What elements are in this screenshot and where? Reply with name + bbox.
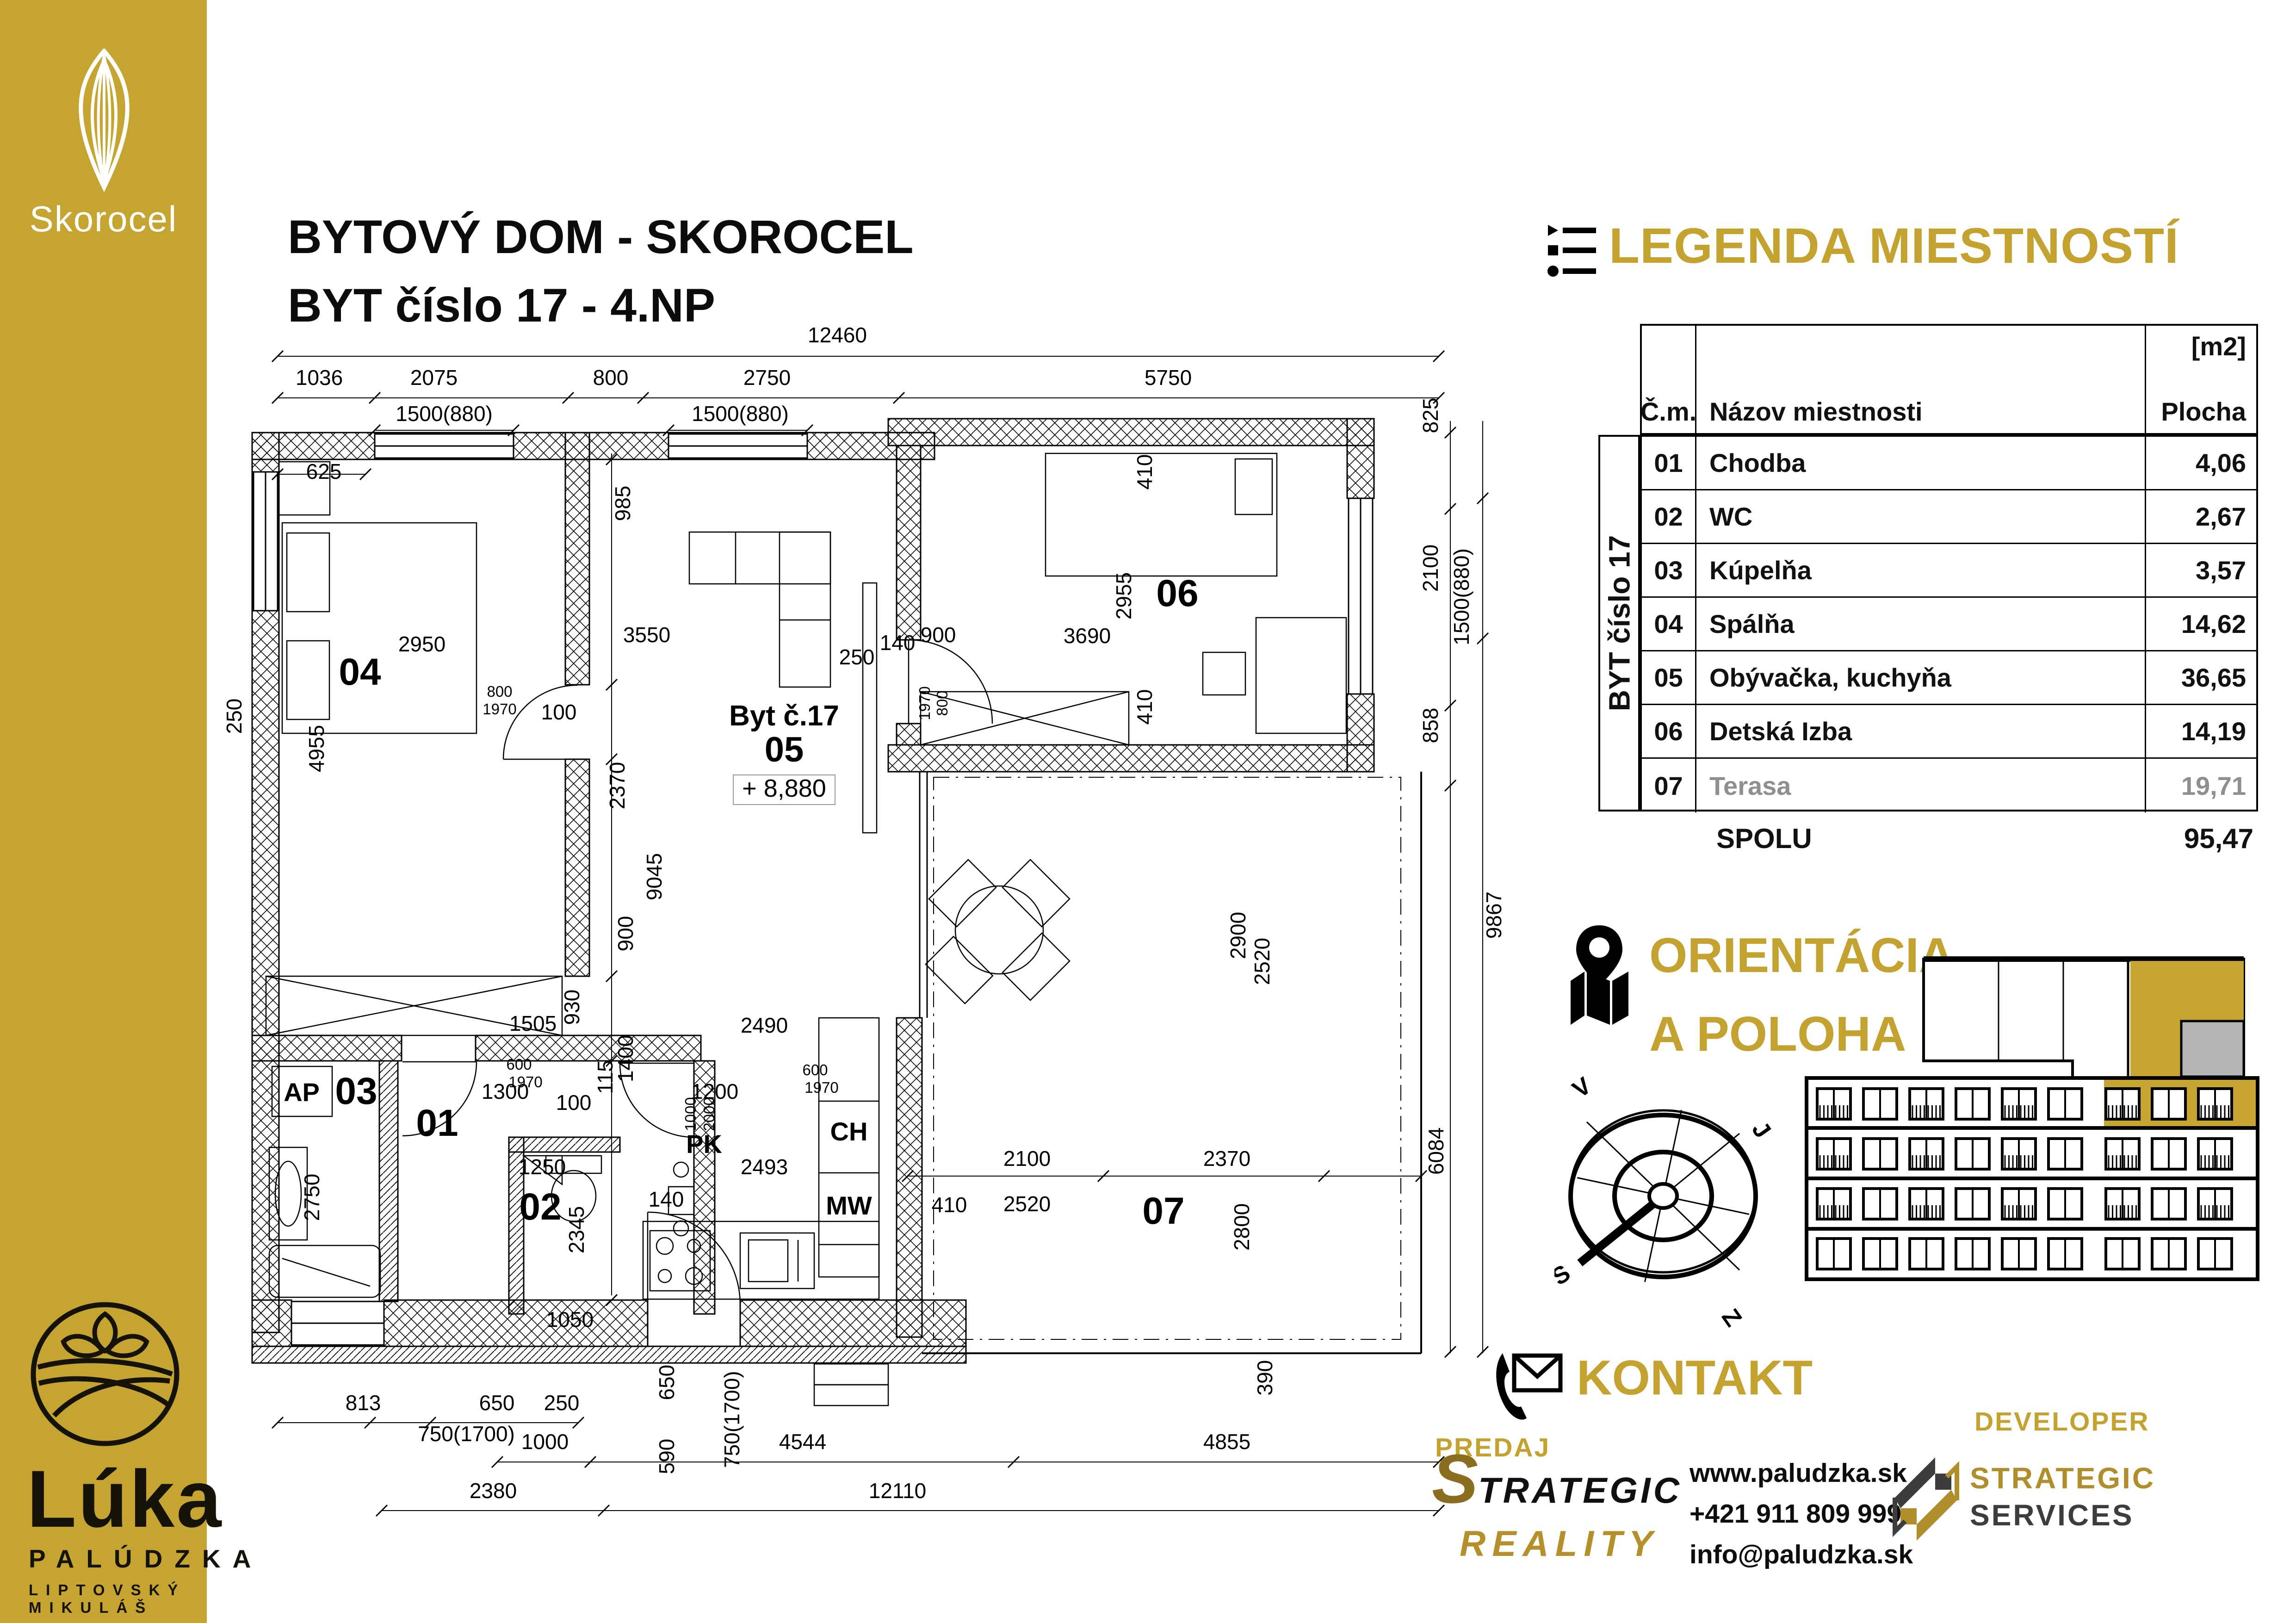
svg-text:1036: 1036 [296, 365, 343, 390]
legend-row: 02WC2,67 [1642, 490, 2256, 544]
svg-text:140: 140 [880, 631, 916, 655]
sr-line2-initial: R [1460, 1523, 1492, 1564]
svg-text:4955: 4955 [304, 725, 328, 772]
svg-text:390: 390 [1253, 1360, 1277, 1396]
svg-text:600: 600 [802, 1061, 828, 1078]
svg-text:4544: 4544 [779, 1430, 826, 1454]
svg-text:1500(880): 1500(880) [1449, 548, 1473, 645]
svg-text:2520: 2520 [1003, 1192, 1051, 1216]
legend-total-value: 95,47 [2184, 823, 2258, 855]
svg-text:9045: 9045 [642, 853, 666, 900]
svg-text:MW: MW [826, 1191, 872, 1220]
svg-text:1500(880): 1500(880) [692, 402, 789, 426]
svg-text:2520: 2520 [1250, 938, 1274, 985]
legend-total-row: SPOLU 95,47 [1640, 823, 2258, 855]
svg-text:1500(880): 1500(880) [396, 402, 493, 426]
svg-text:410: 410 [1133, 454, 1157, 490]
svg-text:2075: 2075 [410, 365, 458, 390]
svg-text:650: 650 [655, 1365, 679, 1400]
svg-text:5750: 5750 [1145, 365, 1192, 390]
svg-text:750(1700): 750(1700) [418, 1422, 515, 1446]
legend-row: 05Obývačka, kuchyňa36,65 [1642, 651, 2256, 705]
svg-text:12110: 12110 [869, 1479, 927, 1503]
legend-row: 04Spálňa14,62 [1642, 598, 2256, 651]
orientation-heading2: A POLOHA [1649, 1006, 1906, 1062]
svg-text:2100: 2100 [1418, 545, 1442, 592]
contact-email: info@paludzka.sk [1690, 1534, 1913, 1575]
svg-text:J: J [1746, 1117, 1776, 1143]
svg-text:1250: 1250 [519, 1155, 566, 1179]
terrace-boundary [920, 772, 1421, 1353]
kontakt-heading: KONTAKT [1577, 1350, 1813, 1406]
svg-text:12460: 12460 [808, 323, 867, 347]
svg-text:590: 590 [655, 1439, 679, 1474]
strategic-services-line1: STRATEGIC [1970, 1461, 2155, 1495]
contact-info: www.paludzka.sk +421 911 809 999 info@pa… [1690, 1453, 1913, 1575]
svg-text:2100: 2100 [1003, 1146, 1051, 1171]
skorocel-leaf-icon [62, 49, 146, 192]
svg-text:2750: 2750 [743, 365, 791, 390]
skorocel-logo-text: Skorocel [0, 198, 207, 240]
legend-col-num: Č.m. [1642, 326, 1696, 433]
svg-text:03: 03 [335, 1070, 377, 1112]
developer-label: DEVELOPER [1974, 1406, 2150, 1437]
svg-text:100: 100 [556, 1090, 592, 1115]
legend-area-label: Plocha [2161, 396, 2246, 427]
legend-unit: [m2] [2191, 331, 2246, 361]
strategic-reality-logo: STRATEGIC REALITY [1432, 1457, 1682, 1565]
svg-text:625: 625 [306, 459, 342, 483]
svg-text:2345: 2345 [564, 1206, 588, 1253]
svg-text:985: 985 [611, 486, 635, 521]
legend-row: 07Terasa19,71 [1642, 759, 2256, 812]
strategic-services-line2: SERVICES [1970, 1498, 2134, 1532]
svg-text:100: 100 [541, 700, 577, 724]
room-number-labels: 040301020607APCHMWPK [284, 572, 1199, 1232]
legend-row: 03Kúpelňa3,57 [1642, 544, 2256, 598]
svg-text:05: 05 [765, 730, 804, 769]
svg-text:650: 650 [479, 1391, 515, 1415]
kontakt-phone-mail-icon [1489, 1337, 1565, 1423]
legend-heading: LEGENDA MIESTNOSTÍ [1609, 217, 2179, 274]
svg-text:3550: 3550 [623, 623, 670, 647]
svg-text:750(1700): 750(1700) [720, 1371, 744, 1468]
svg-text:1970: 1970 [483, 700, 516, 718]
svg-text:2900: 2900 [1226, 912, 1250, 959]
legend-list-icon [1544, 221, 1600, 284]
svg-text:+ 8,880: + 8,880 [742, 774, 826, 802]
strategic-services-mark-icon [1887, 1448, 1965, 1550]
legend-col-name: Názov miestnosti [1696, 326, 2146, 433]
svg-text:410: 410 [1133, 689, 1157, 725]
svg-text:2750: 2750 [300, 1174, 324, 1221]
contact-website: www.paludzka.sk [1690, 1453, 1913, 1493]
svg-text:4855: 4855 [1203, 1430, 1250, 1454]
svg-text:2370: 2370 [1203, 1146, 1250, 1171]
svg-text:813: 813 [346, 1391, 381, 1415]
svg-text:Z: Z [1716, 1304, 1747, 1328]
svg-text:07: 07 [1142, 1190, 1184, 1232]
legend-table: Č.m. Názov miestnosti [m2] Plocha BYT čí… [1598, 324, 2258, 907]
svg-text:250: 250 [222, 699, 246, 734]
svg-text:2000: 2000 [700, 1097, 718, 1131]
gold-sidebar: Skorocel Lúka PALÚDZKA LIPTOVSKÝ MIKULÁŠ [0, 0, 207, 1623]
svg-text:800: 800 [593, 365, 629, 390]
legend-col-area: [m2] Plocha [2146, 326, 2256, 433]
contact-phone: +421 911 809 999 [1690, 1493, 1913, 1534]
svg-text:800: 800 [934, 690, 951, 716]
svg-text:858: 858 [1418, 708, 1442, 743]
svg-text:2380: 2380 [470, 1479, 517, 1503]
title-line1: BYTOVÝ DOM - SKOROCEL [288, 203, 914, 271]
svg-text:900: 900 [613, 916, 637, 952]
svg-text:Byt č.17: Byt č.17 [729, 700, 839, 732]
svg-text:2950: 2950 [398, 632, 446, 656]
legend-rows: 01Chodba4,0602WC2,6703Kúpelňa3,5704Spálň… [1640, 435, 2258, 811]
svg-text:600: 600 [506, 1056, 532, 1073]
svg-text:2493: 2493 [741, 1155, 788, 1179]
svg-text:PK: PK [686, 1129, 722, 1158]
svg-text:410: 410 [932, 1193, 967, 1217]
svg-text:930: 930 [560, 990, 584, 1025]
svg-text:2490: 2490 [741, 1013, 788, 1037]
svg-text:1505: 1505 [509, 1011, 557, 1035]
svg-text:CH: CH [830, 1117, 868, 1146]
svg-text:3690: 3690 [1064, 624, 1111, 648]
floor-plan: Byt č.17 05 + 8,880 12460103620758002750… [213, 315, 1554, 1573]
svg-text:115: 115 [593, 1060, 617, 1094]
svg-text:800: 800 [487, 683, 512, 700]
sr-initial: S [1432, 1440, 1478, 1518]
legend-header-row: Č.m. Názov miestnosti [m2] Plocha [1640, 324, 2258, 435]
walls [252, 419, 1374, 1346]
floor-position-diagram [1920, 951, 2258, 1085]
svg-text:S: S [1554, 1259, 1575, 1290]
svg-text:06: 06 [1156, 572, 1198, 614]
svg-text:1050: 1050 [546, 1307, 594, 1332]
building-facade-diagram [1804, 1076, 2262, 1284]
svg-text:V: V [1568, 1072, 1597, 1103]
svg-text:1000: 1000 [682, 1097, 699, 1131]
svg-text:04: 04 [339, 651, 381, 693]
svg-text:01: 01 [416, 1102, 458, 1144]
svg-text:1970: 1970 [916, 686, 933, 720]
svg-text:02: 02 [519, 1186, 561, 1228]
svg-text:AP: AP [284, 1078, 320, 1107]
svg-text:1970: 1970 [805, 1079, 838, 1096]
legend-side-label: BYT číslo 17 [1598, 435, 1640, 811]
svg-text:140: 140 [649, 1187, 684, 1211]
svg-text:900: 900 [921, 623, 956, 647]
svg-text:250: 250 [544, 1391, 580, 1415]
legend-row: 06Detská Izba14,19 [1642, 705, 2256, 759]
legend-row: 01Chodba4,06 [1642, 437, 2256, 490]
compass-icon: VJSZ [1554, 1059, 1776, 1328]
apartment-label: Byt č.17 05 + 8,880 [729, 700, 839, 805]
luka-logo-sub2: LIPTOVSKÝ MIKULÁŠ [29, 1581, 207, 1617]
legend-total-label: SPOLU [1640, 823, 1812, 855]
svg-text:1970: 1970 [508, 1073, 542, 1090]
sr-line2: EALITY [1492, 1523, 1659, 1564]
luka-emblem-icon [29, 1298, 181, 1450]
svg-text:250: 250 [839, 645, 875, 669]
sr-line1: TRATEGIC [1478, 1470, 1682, 1511]
svg-text:6084: 6084 [1424, 1127, 1448, 1175]
svg-text:825: 825 [1418, 398, 1442, 434]
map-pin-icon [1566, 925, 1633, 1025]
luka-logo-text: Lúka [27, 1453, 223, 1546]
svg-text:2800: 2800 [1230, 1203, 1254, 1251]
svg-text:1000: 1000 [521, 1430, 569, 1454]
orientation-heading1: ORIENTÁCIA [1649, 928, 1955, 984]
svg-text:2955: 2955 [1112, 572, 1136, 619]
svg-text:9867: 9867 [1482, 892, 1506, 939]
windows [254, 434, 1373, 1345]
svg-text:2370: 2370 [605, 762, 629, 809]
